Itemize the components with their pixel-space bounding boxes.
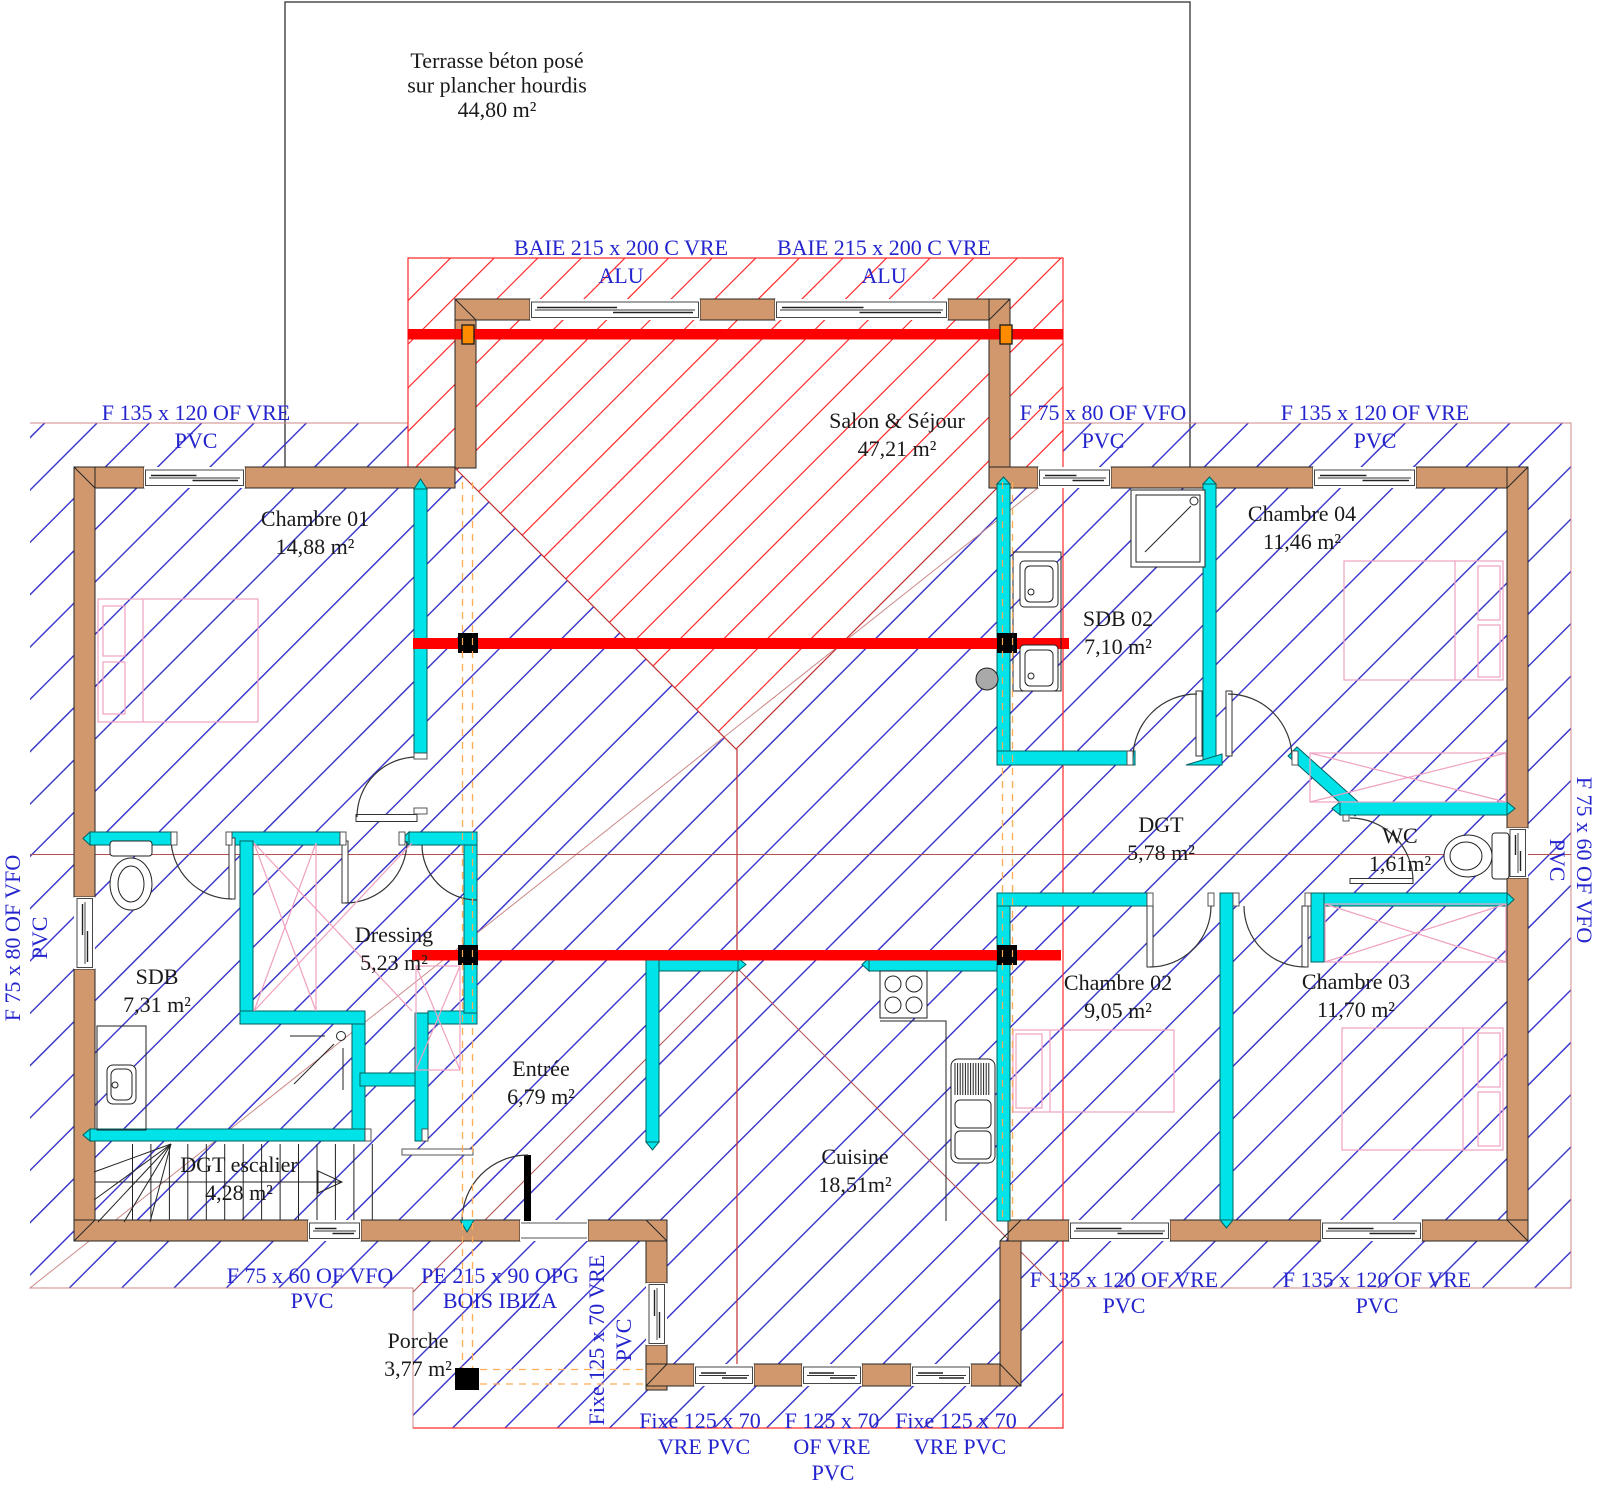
svg-text:47,21 m²: 47,21 m² bbox=[858, 436, 937, 461]
svg-text:F 135 x 120 OF VRE: F 135 x 120 OF VRE bbox=[1030, 1267, 1218, 1292]
svg-text:PVC: PVC bbox=[1545, 839, 1570, 882]
svg-text:7,10 m²: 7,10 m² bbox=[1084, 634, 1152, 659]
svg-text:5,23 m²: 5,23 m² bbox=[360, 950, 428, 975]
svg-text:PVC: PVC bbox=[1356, 1293, 1399, 1318]
svg-text:Terrasse béton posé: Terrasse béton posé bbox=[410, 48, 583, 73]
svg-text:11,70 m²: 11,70 m² bbox=[1317, 997, 1395, 1022]
svg-text:Dressing: Dressing bbox=[355, 922, 433, 947]
svg-text:7,31 m²: 7,31 m² bbox=[123, 992, 191, 1017]
svg-text:PVC: PVC bbox=[1103, 1293, 1146, 1318]
svg-text:VRE PVC: VRE PVC bbox=[658, 1434, 750, 1459]
svg-text:VRE PVC: VRE PVC bbox=[914, 1434, 1006, 1459]
svg-text:BAIE 215 x 200 C VRE: BAIE 215 x 200 C VRE bbox=[777, 235, 991, 260]
svg-text:Cuisine: Cuisine bbox=[821, 1144, 888, 1169]
svg-text:3,77 m²: 3,77 m² bbox=[384, 1356, 452, 1381]
svg-text:SDB: SDB bbox=[136, 964, 179, 989]
svg-text:F 75 x 80 OF VFO: F 75 x 80 OF VFO bbox=[0, 855, 25, 1021]
svg-text:Fixe 125 x 70: Fixe 125 x 70 bbox=[895, 1408, 1017, 1433]
svg-text:F 75 x 60 OF VFO: F 75 x 60 OF VFO bbox=[1572, 777, 1597, 943]
svg-text:PVC: PVC bbox=[812, 1460, 855, 1485]
svg-text:sur plancher hourdis: sur plancher hourdis bbox=[407, 73, 587, 98]
svg-text:PE 215 x 90 OPG: PE 215 x 90 OPG bbox=[421, 1263, 579, 1288]
svg-text:WC: WC bbox=[1382, 823, 1417, 848]
svg-text:Porche: Porche bbox=[387, 1328, 448, 1353]
svg-text:5,78 m²: 5,78 m² bbox=[1127, 840, 1195, 865]
svg-text:PVC: PVC bbox=[611, 1319, 636, 1362]
svg-text:Chambre 01: Chambre 01 bbox=[261, 506, 369, 531]
svg-text:BOIS IBIZA: BOIS IBIZA bbox=[443, 1288, 557, 1313]
svg-text:PVC: PVC bbox=[291, 1288, 334, 1313]
svg-text:PVC: PVC bbox=[175, 428, 218, 453]
svg-text:9,05 m²: 9,05 m² bbox=[1084, 998, 1152, 1023]
svg-text:44,80 m²: 44,80 m² bbox=[458, 97, 537, 122]
svg-text:PVC: PVC bbox=[1354, 428, 1397, 453]
svg-text:F 125 x 70: F 125 x 70 bbox=[785, 1408, 880, 1433]
svg-text:4,28 m²: 4,28 m² bbox=[205, 1180, 273, 1205]
svg-text:14,88 m²: 14,88 m² bbox=[276, 534, 355, 559]
svg-text:F 135 x 120 OF VRE: F 135 x 120 OF VRE bbox=[1283, 1267, 1471, 1292]
svg-text:6,79 m²: 6,79 m² bbox=[507, 1084, 575, 1109]
svg-text:Chambre 04: Chambre 04 bbox=[1248, 501, 1356, 526]
svg-text:BAIE 215 x 200 C VRE: BAIE 215 x 200 C VRE bbox=[514, 235, 728, 260]
svg-text:11,46 m²: 11,46 m² bbox=[1263, 529, 1341, 554]
svg-text:Salon & Séjour: Salon & Séjour bbox=[829, 408, 965, 433]
svg-text:Fixe 125 x 70: Fixe 125 x 70 bbox=[639, 1408, 761, 1433]
svg-text:ALU: ALU bbox=[861, 263, 906, 288]
svg-text:F 75 x 60 OF VFO: F 75 x 60 OF VFO bbox=[227, 1263, 393, 1288]
svg-text:PVC: PVC bbox=[27, 917, 52, 960]
svg-text:F 135 x 120 OF VRE: F 135 x 120 OF VRE bbox=[102, 400, 290, 425]
svg-text:F 135 x 120 OF VRE: F 135 x 120 OF VRE bbox=[1281, 400, 1469, 425]
svg-text:Fixe 125 x 70 VRE: Fixe 125 x 70 VRE bbox=[584, 1255, 609, 1426]
svg-text:DGT: DGT bbox=[1138, 812, 1184, 837]
svg-text:Entrée: Entrée bbox=[512, 1056, 569, 1081]
svg-text:OF VRE: OF VRE bbox=[793, 1434, 870, 1459]
svg-text:Chambre 03: Chambre 03 bbox=[1302, 969, 1410, 994]
svg-text:Chambre 02: Chambre 02 bbox=[1064, 970, 1172, 995]
svg-text:DGT escalier: DGT escalier bbox=[180, 1152, 298, 1177]
svg-text:SDB 02: SDB 02 bbox=[1083, 606, 1153, 631]
svg-text:PVC: PVC bbox=[1082, 428, 1125, 453]
svg-text:ALU: ALU bbox=[598, 263, 643, 288]
svg-text:F 75 x 80 OF VFO: F 75 x 80 OF VFO bbox=[1020, 400, 1186, 425]
svg-text:1,61m²: 1,61m² bbox=[1369, 851, 1432, 876]
svg-text:18,51m²: 18,51m² bbox=[818, 1172, 892, 1197]
